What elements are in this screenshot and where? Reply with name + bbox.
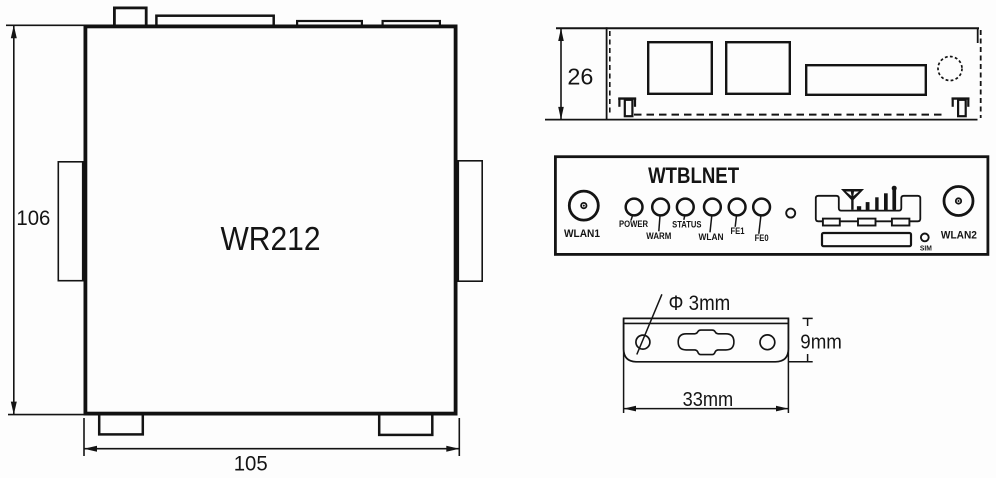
svg-text:STATUS: STATUS xyxy=(672,220,701,230)
svg-text:WLAN1: WLAN1 xyxy=(564,228,600,240)
svg-text:FE0: FE0 xyxy=(755,233,769,243)
svg-text:33mm: 33mm xyxy=(683,389,734,411)
svg-text:WARM: WARM xyxy=(646,231,671,241)
svg-text:9mm: 9mm xyxy=(800,332,842,354)
svg-text:26: 26 xyxy=(567,64,593,90)
svg-text:POWER: POWER xyxy=(619,219,648,229)
svg-text:WLAN: WLAN xyxy=(699,232,724,242)
svg-text:FE1: FE1 xyxy=(731,226,745,236)
svg-text:Φ 3mm: Φ 3mm xyxy=(669,292,731,315)
svg-text:WLAN2: WLAN2 xyxy=(941,230,977,242)
svg-text:106: 106 xyxy=(16,206,50,230)
svg-text:105: 105 xyxy=(234,451,268,475)
svg-text:SIM: SIM xyxy=(920,243,932,252)
svg-text:WTBLNET: WTBLNET xyxy=(648,163,739,188)
svg-text:WR212: WR212 xyxy=(221,220,321,257)
